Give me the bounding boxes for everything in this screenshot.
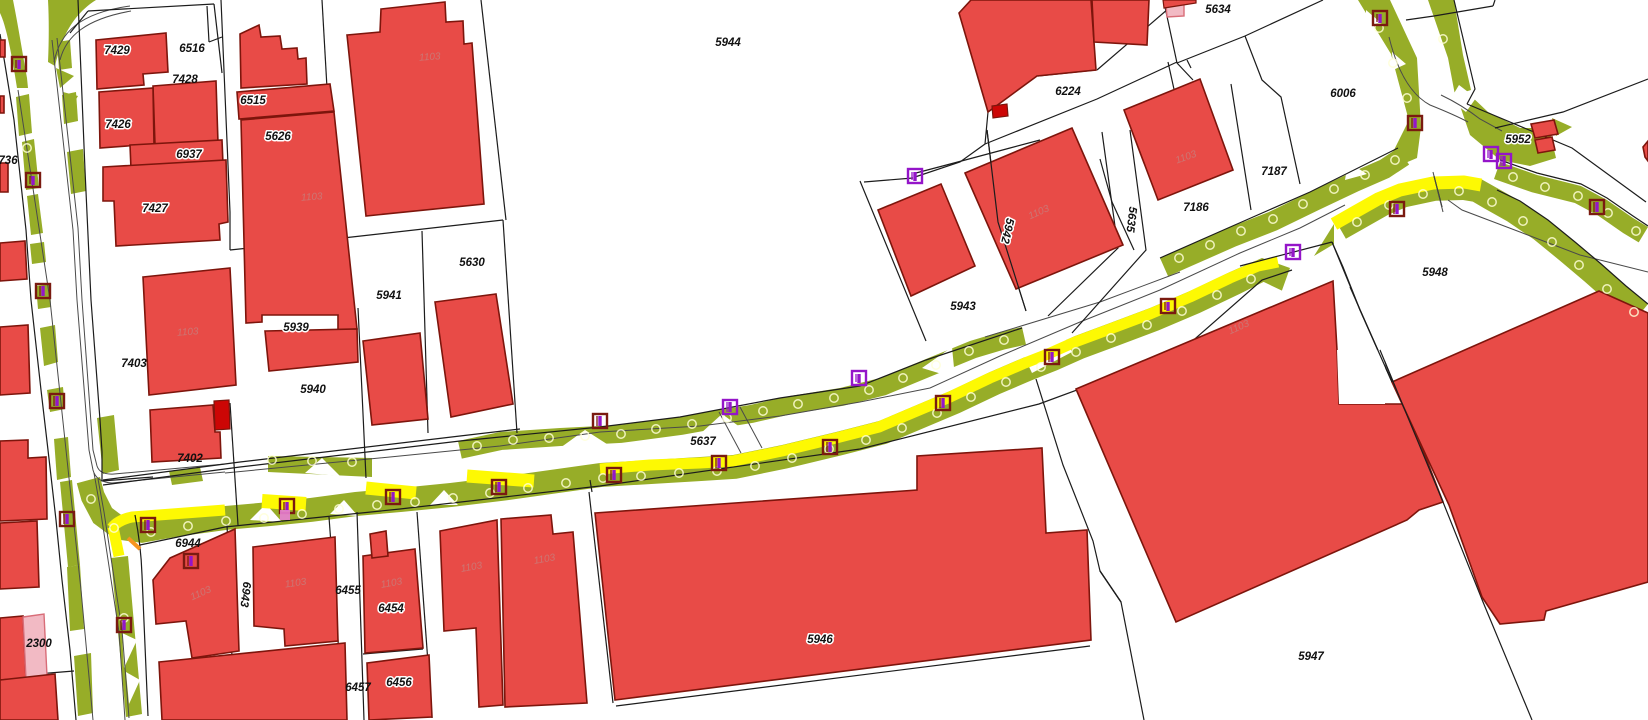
svg-text:1103: 1103 — [419, 51, 442, 64]
svg-text:2300: 2300 — [25, 638, 52, 650]
svg-text:7186: 7186 — [1183, 202, 1209, 214]
svg-text:5637: 5637 — [690, 436, 716, 448]
svg-text:7402: 7402 — [177, 453, 203, 465]
svg-text:6944: 6944 — [175, 538, 201, 550]
svg-text:5630: 5630 — [459, 257, 485, 269]
svg-text:5943: 5943 — [950, 301, 976, 313]
svg-text:7187: 7187 — [1261, 166, 1287, 178]
svg-text:7403: 7403 — [121, 358, 147, 370]
svg-text:5947: 5947 — [1298, 651, 1324, 663]
svg-text:5940: 5940 — [300, 384, 326, 396]
svg-text:6454: 6454 — [378, 603, 404, 615]
svg-text:6516: 6516 — [179, 43, 205, 55]
svg-text:6224: 6224 — [1055, 86, 1081, 98]
svg-text:5941: 5941 — [376, 290, 402, 302]
svg-text:5946: 5946 — [807, 634, 833, 646]
svg-text:1103: 1103 — [301, 191, 324, 204]
svg-text:6455: 6455 — [335, 585, 361, 597]
svg-text:7429: 7429 — [104, 45, 130, 57]
svg-text:5626: 5626 — [265, 131, 291, 143]
svg-text:5634: 5634 — [1205, 4, 1231, 16]
svg-text:5939: 5939 — [283, 322, 309, 334]
svg-text:5952: 5952 — [1505, 134, 1531, 146]
svg-text:6006: 6006 — [1330, 88, 1356, 100]
svg-text:736: 736 — [0, 155, 18, 167]
svg-text:6515: 6515 — [240, 95, 266, 107]
svg-text:6937: 6937 — [176, 149, 202, 161]
svg-text:6457: 6457 — [345, 682, 371, 694]
svg-text:5944: 5944 — [715, 37, 741, 49]
svg-text:6456: 6456 — [386, 677, 412, 689]
svg-text:7427: 7427 — [142, 203, 168, 215]
svg-text:7426: 7426 — [105, 119, 131, 131]
svg-text:1103: 1103 — [177, 326, 200, 339]
svg-text:5948: 5948 — [1422, 267, 1448, 279]
svg-text:7428: 7428 — [172, 74, 198, 86]
